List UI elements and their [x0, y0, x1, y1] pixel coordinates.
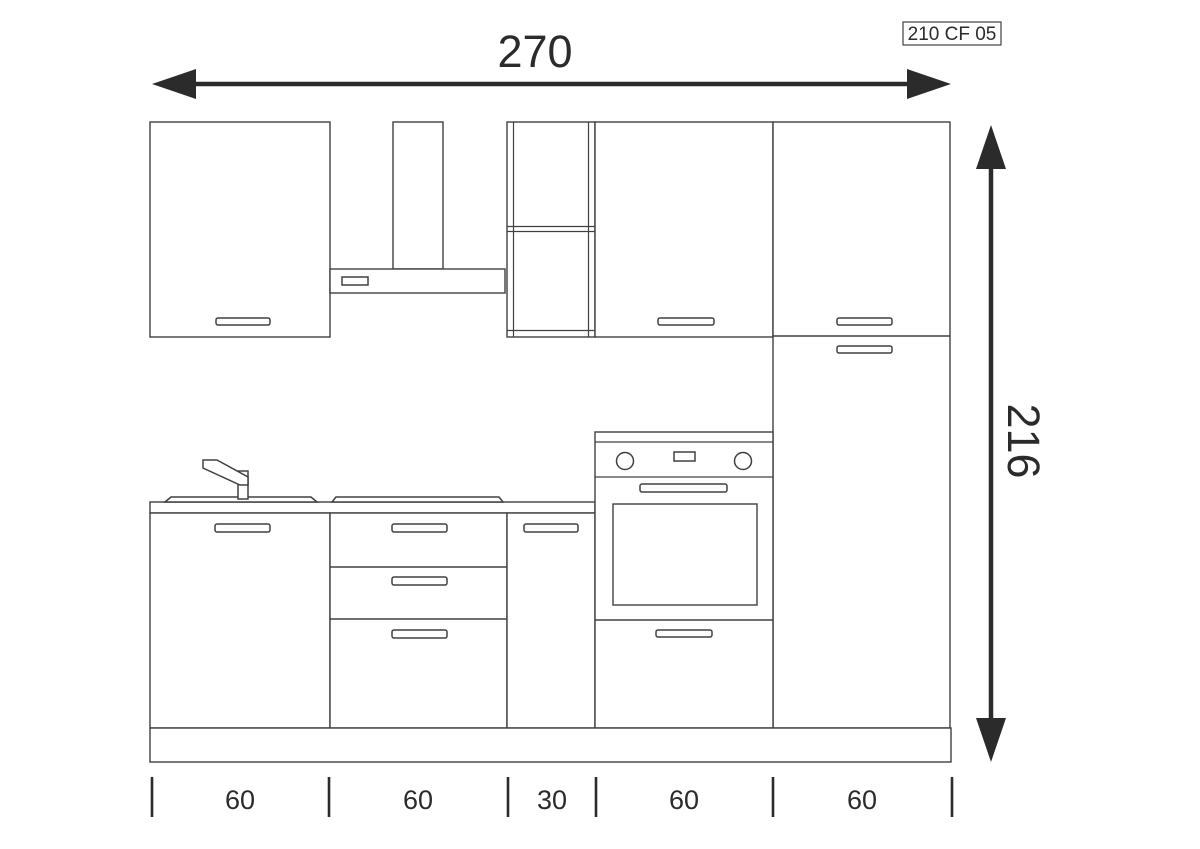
tall-cabinet-lower-handle	[837, 346, 892, 353]
faucet-spout	[203, 460, 248, 485]
drawer-base-cabinet	[330, 513, 507, 728]
oven-display	[674, 452, 695, 461]
oven-lower-drawer-handle	[656, 630, 712, 637]
wall-cabinet-left-door	[150, 122, 330, 337]
oven-knob-right-icon	[735, 453, 752, 470]
segment-width-label-5: 60	[847, 785, 877, 815]
overall-height-label: 216	[998, 403, 1049, 478]
dimension-right: 216	[976, 125, 1049, 762]
built-in-oven-unit	[595, 432, 773, 728]
overall-width-label: 270	[497, 26, 572, 77]
plinth	[150, 728, 951, 762]
arrow-right-head-icon	[907, 69, 951, 99]
dimension-bottom: 60 60 30 60 60	[152, 777, 952, 817]
sink-base-door	[150, 513, 330, 728]
drawing-canvas: 210 CF 05 270 216	[0, 0, 1200, 849]
oven-door-handle	[640, 484, 727, 492]
wall-cabinet-left	[150, 122, 330, 337]
arrow-up-head-icon	[976, 125, 1006, 169]
segment-width-label-2: 60	[403, 785, 433, 815]
sink-base-cabinet	[150, 513, 330, 728]
oven-knob-left-icon	[617, 453, 634, 470]
base-cabinet-30	[507, 513, 595, 728]
base-30-door	[507, 513, 595, 728]
base-30-handle	[524, 524, 578, 532]
model-code-label: 210 CF 05	[908, 24, 997, 45]
drawer-handle-1	[392, 524, 447, 532]
hood-chimney	[393, 122, 443, 269]
wall-cabinet-right-handle	[658, 318, 714, 325]
open-shelf-unit	[507, 122, 595, 337]
tall-cabinet-frame	[773, 122, 950, 728]
drawer-handle-2	[392, 577, 447, 585]
wall-cabinet-right	[595, 122, 773, 337]
kitchen-elevation-svg: 210 CF 05 270 216	[0, 0, 1200, 849]
wall-cabinet-left-handle	[216, 318, 270, 325]
plinth-board	[150, 728, 951, 762]
tall-cabinet	[773, 122, 950, 728]
cooktop-rim	[332, 497, 503, 502]
shelf-unit-frame	[507, 122, 595, 337]
segment-width-label-4: 60	[669, 785, 699, 815]
segment-width-label-3: 30	[537, 785, 567, 815]
arrow-left-head-icon	[152, 69, 196, 99]
hood-control-panel	[342, 277, 368, 285]
drawer-handle-3	[392, 630, 447, 638]
tall-cabinet-upper-handle	[837, 318, 892, 325]
drawer-unit-frame	[330, 513, 507, 728]
cooktop	[332, 497, 503, 502]
segment-width-label-1: 60	[225, 785, 255, 815]
faucet	[203, 460, 248, 499]
countertop-slab	[150, 502, 595, 513]
cooker-hood	[330, 122, 505, 293]
sink-base-handle	[215, 524, 270, 532]
title-block: 210 CF 05	[903, 22, 1001, 45]
wall-cabinet-right-door	[595, 122, 773, 337]
countertop	[150, 502, 595, 513]
dimension-top: 270	[152, 26, 951, 99]
oven-door-window	[613, 504, 757, 605]
arrow-down-head-icon	[976, 718, 1006, 762]
